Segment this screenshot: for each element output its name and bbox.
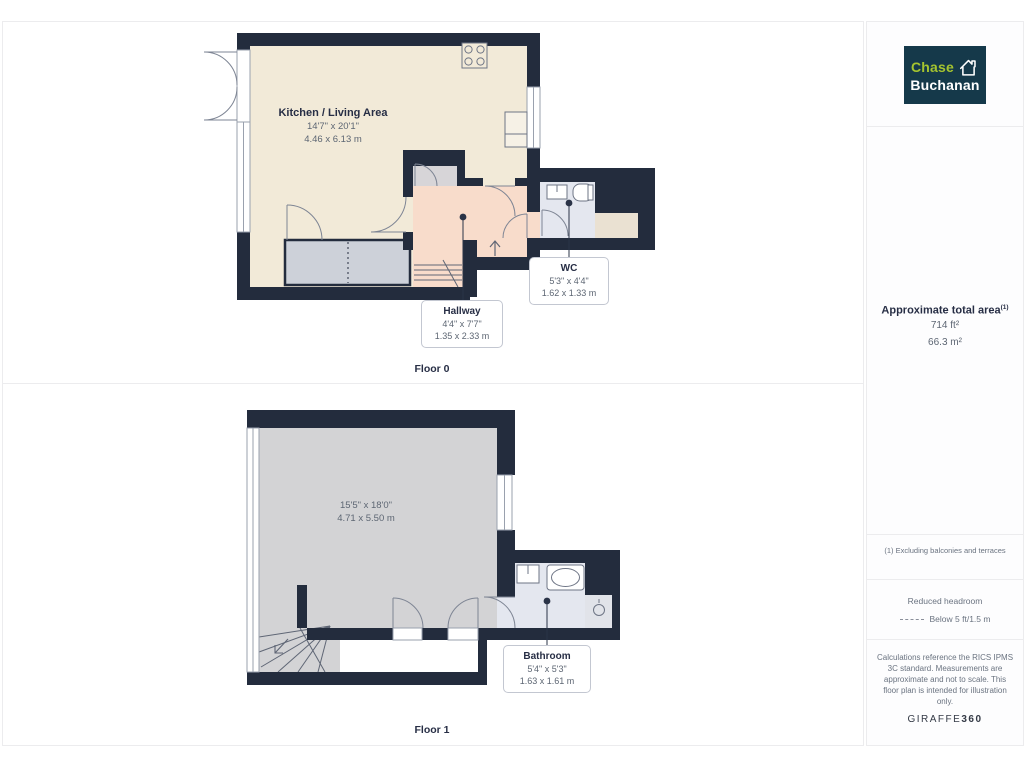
wc-sink-icon xyxy=(547,185,567,199)
kitchen-label: Kitchen / Living Area 14'7" x 20'1" 4.46… xyxy=(253,106,413,146)
brand-name: GIRAFFE xyxy=(907,714,961,725)
room-name: Kitchen / Living Area xyxy=(253,106,413,120)
room-dims-imperial: 14'7" x 20'1" xyxy=(253,120,413,133)
room-dims-imperial: 5'4" x 5'3" xyxy=(507,663,587,675)
chase-buchanan-logo: Chase Buchanan xyxy=(904,46,986,104)
reduced-headroom-legend: Below 5 ft/1.5 m xyxy=(930,614,991,624)
bathroom-sink-icon xyxy=(517,565,539,583)
floor-divider xyxy=(2,383,864,384)
toilet-icon xyxy=(573,184,593,201)
bathtub-icon xyxy=(547,565,584,590)
divider xyxy=(867,579,1023,580)
divider xyxy=(867,126,1023,127)
divider xyxy=(867,534,1023,535)
total-area-metric: 66.3 m² xyxy=(867,334,1023,351)
bathroom-label-box: Bathroom 5'4" x 5'3" 1.63 x 1.61 m xyxy=(503,645,591,693)
room-name: Hallway xyxy=(425,305,499,318)
entry-double-door xyxy=(204,52,237,120)
kitchen-sink-icon xyxy=(505,112,527,147)
reduced-headroom-title: Reduced headroom xyxy=(867,596,1023,606)
house-icon xyxy=(958,58,979,77)
floor0-caption: Floor 0 xyxy=(382,363,482,375)
brand-suffix: 360 xyxy=(961,714,982,725)
logo-text-buchanan: Buchanan xyxy=(910,77,979,93)
total-area-title: Approximate total area(1) xyxy=(867,304,1023,317)
room-dims-metric: 1.63 x 1.61 m xyxy=(507,675,587,687)
area-footnote: (1) Excluding balconies and terraces xyxy=(867,546,1023,555)
disclaimer-text: Calculations reference the RICS IPMS 3C … xyxy=(876,652,1014,707)
dashed-line-icon xyxy=(900,619,924,620)
room-name: Bathroom xyxy=(507,650,587,663)
room-dims-metric: 1.35 x 2.33 m xyxy=(425,330,499,342)
logo-text-chase: Chase xyxy=(911,59,954,75)
wc-label-box: WC 5'3" x 4'4" 1.62 x 1.33 m xyxy=(529,257,609,305)
stove-icon xyxy=(462,43,487,68)
room-name: WC xyxy=(533,262,605,275)
room-dims-imperial: 5'3" x 4'4" xyxy=(533,275,605,287)
floor1-main-room-label: 15'5" x 18'0" 4.71 x 5.50 m xyxy=(296,499,436,525)
hallway-label-box: Hallway 4'4" x 7'7" 1.35 x 2.33 m xyxy=(421,300,503,348)
total-area-block: Approximate total area(1) 714 ft² 66.3 m… xyxy=(867,304,1023,351)
total-area-imperial: 714 ft² xyxy=(867,317,1023,334)
giraffe360-brand: GIRAFFE360 xyxy=(867,714,1023,725)
reduced-headroom-block: Reduced headroom Below 5 ft/1.5 m xyxy=(867,596,1023,624)
footnote-marker: (1) xyxy=(1001,304,1009,311)
room-dims-imperial: 15'5" x 18'0" xyxy=(296,499,436,512)
kitchen-counter xyxy=(285,240,410,285)
room-dims-metric: 4.46 x 6.13 m xyxy=(253,133,413,146)
room-dims-metric: 4.71 x 5.50 m xyxy=(296,512,436,525)
divider xyxy=(867,639,1023,640)
room-dims-imperial: 4'4" x 7'7" xyxy=(425,318,499,330)
floorplan-page: Kitchen / Living Area 14'7" x 20'1" 4.46… xyxy=(0,0,1024,768)
info-sidebar: Chase Buchanan Approximate total area(1)… xyxy=(866,21,1024,746)
room-dims-metric: 1.62 x 1.33 m xyxy=(533,287,605,299)
floor1-caption: Floor 1 xyxy=(382,724,482,736)
